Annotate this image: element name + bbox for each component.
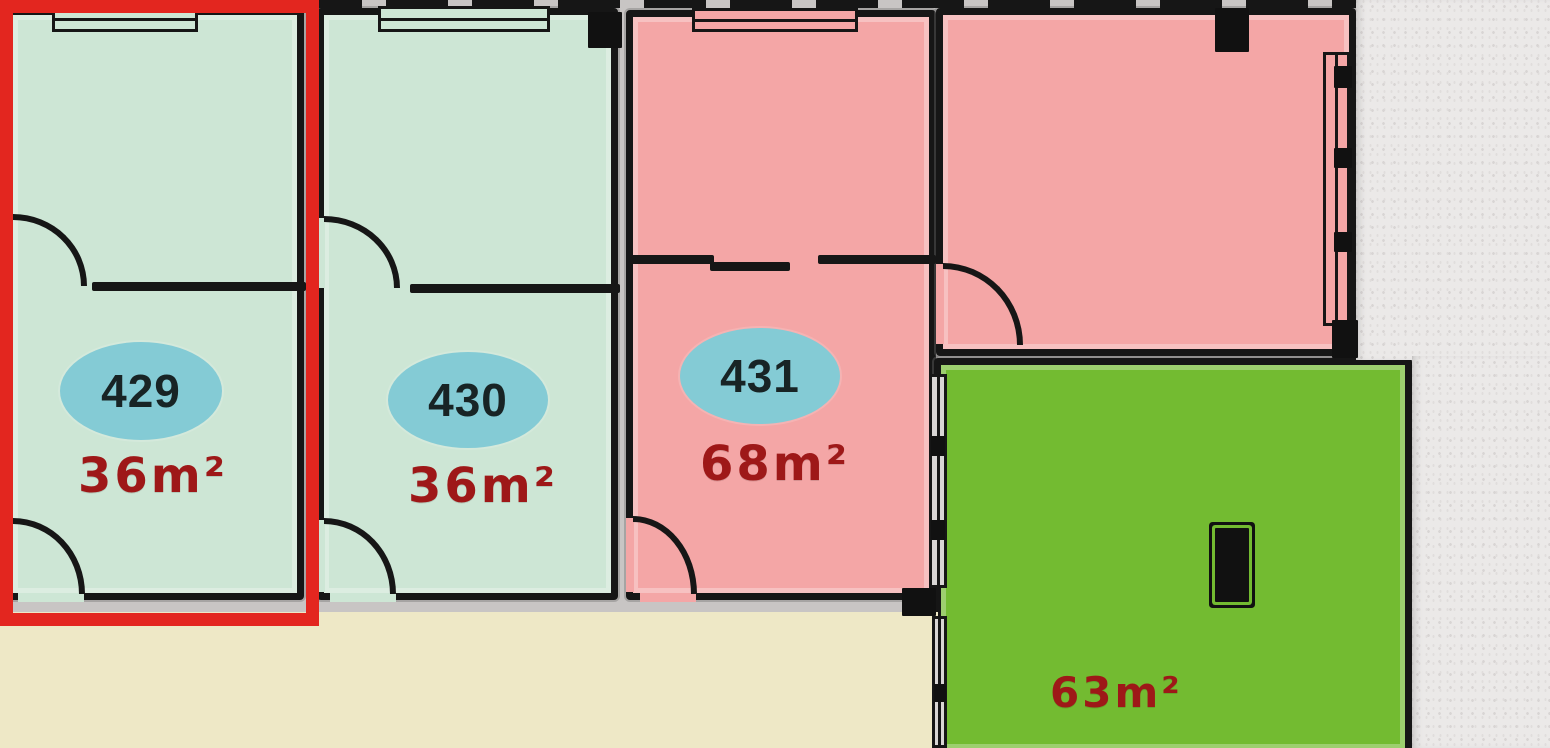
unit-badge-431: 431 xyxy=(680,328,840,424)
structural-column xyxy=(902,588,936,616)
window-mullion xyxy=(934,684,946,702)
corridor xyxy=(0,612,938,748)
window xyxy=(929,374,947,588)
window xyxy=(378,6,550,32)
window-mullion xyxy=(931,520,945,540)
outside-area-top-right xyxy=(1356,0,1550,360)
unit-badge-430: 430 xyxy=(388,352,548,448)
structural-column xyxy=(588,12,622,48)
window xyxy=(692,8,858,32)
duct-shaft xyxy=(1215,528,1249,602)
structural-column xyxy=(1215,8,1249,52)
window xyxy=(1323,52,1350,326)
floor-plan-canvas: 429 430 431 36m² 36m² 68m² 63m² xyxy=(0,0,1550,748)
outside-area-bottom-right xyxy=(1412,356,1550,748)
unit-area-label-430: 36m² xyxy=(408,458,558,514)
partition-wall xyxy=(818,255,936,264)
partition-wall xyxy=(410,284,620,293)
window-mullion xyxy=(1334,232,1352,252)
window xyxy=(932,616,947,748)
partition-wall xyxy=(710,262,790,271)
structural-column xyxy=(1332,320,1358,358)
unit-number: 431 xyxy=(720,349,800,403)
unit-431-room[interactable] xyxy=(626,10,936,600)
window-mullion xyxy=(1334,66,1352,88)
door-opening xyxy=(330,593,396,602)
partition-wall xyxy=(628,255,714,264)
selection-highlight-429 xyxy=(0,0,319,626)
door-opening xyxy=(640,593,696,602)
unit-number: 430 xyxy=(428,373,508,427)
unit-area-label-431: 68m² xyxy=(700,436,850,492)
window-mullion xyxy=(931,436,945,456)
window-mullion xyxy=(1334,148,1352,168)
unit-area-label-green: 63m² xyxy=(1050,668,1183,717)
